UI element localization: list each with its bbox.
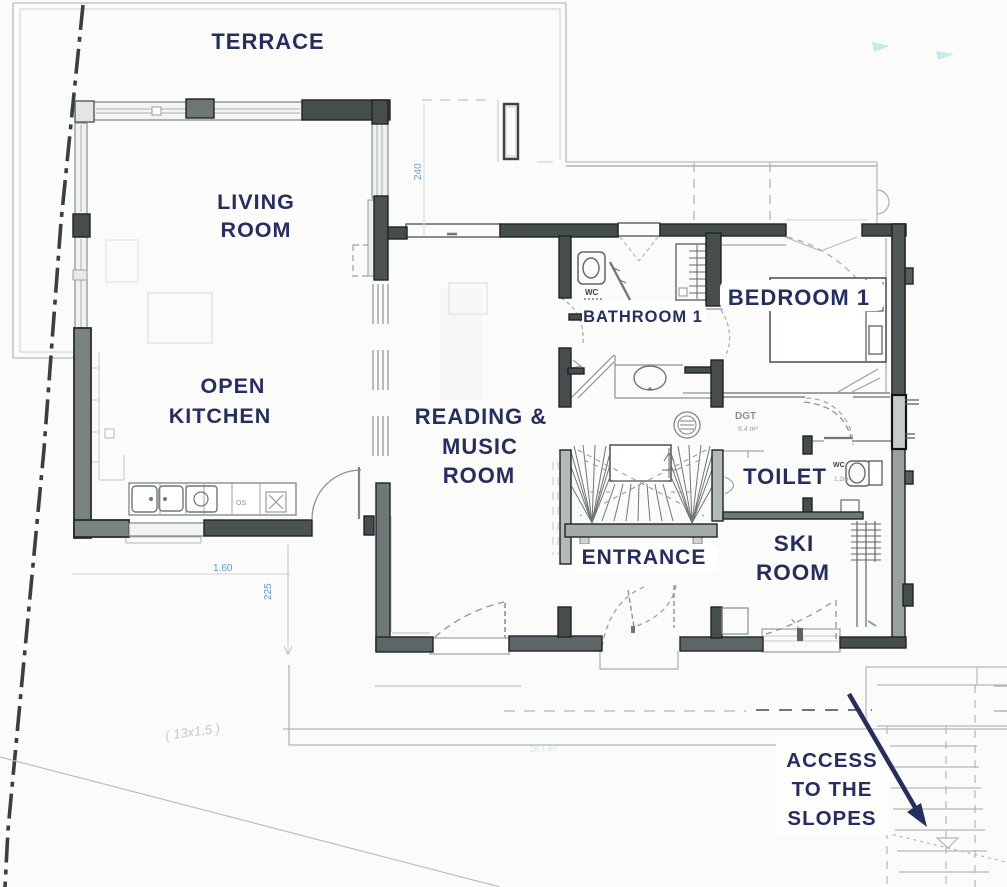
svg-text:TOILET: TOILET <box>743 464 827 489</box>
svg-text:OS: OS <box>236 500 246 507</box>
svg-text:ENTRANCE: ENTRANCE <box>582 546 707 569</box>
svg-text:ROOM: ROOM <box>443 463 515 488</box>
svg-text:KITCHEN: KITCHEN <box>169 404 272 428</box>
svg-text:ROOM: ROOM <box>221 218 292 242</box>
svg-text:6.4 m²: 6.4 m² <box>738 426 759 433</box>
svg-text:SKI: SKI <box>774 531 815 556</box>
svg-text:DGT: DGT <box>735 411 756 422</box>
svg-text:WC: WC <box>833 462 845 469</box>
svg-text:ROOM: ROOM <box>756 560 830 585</box>
svg-text:29,1 m²: 29,1 m² <box>530 744 558 754</box>
svg-text:SLOPES: SLOPES <box>787 807 876 830</box>
svg-text:1.60: 1.60 <box>213 563 233 574</box>
svg-text:BEDROOM 1: BEDROOM 1 <box>728 285 870 310</box>
svg-text:225: 225 <box>263 583 274 600</box>
svg-text:TERRACE: TERRACE <box>211 29 324 54</box>
svg-text:TO THE: TO THE <box>792 778 873 801</box>
svg-text:OPEN: OPEN <box>201 374 266 398</box>
svg-text:BATHROOM 1: BATHROOM 1 <box>583 308 703 326</box>
svg-text:ACCESS: ACCESS <box>786 749 877 772</box>
svg-text:WC: WC <box>585 288 599 297</box>
svg-text:LIVING: LIVING <box>217 190 295 214</box>
svg-text:240: 240 <box>413 163 424 180</box>
svg-text:1,2m²: 1,2m² <box>834 476 851 483</box>
svg-text:READING &: READING & <box>415 404 547 429</box>
svg-text:MUSIC: MUSIC <box>442 434 518 459</box>
